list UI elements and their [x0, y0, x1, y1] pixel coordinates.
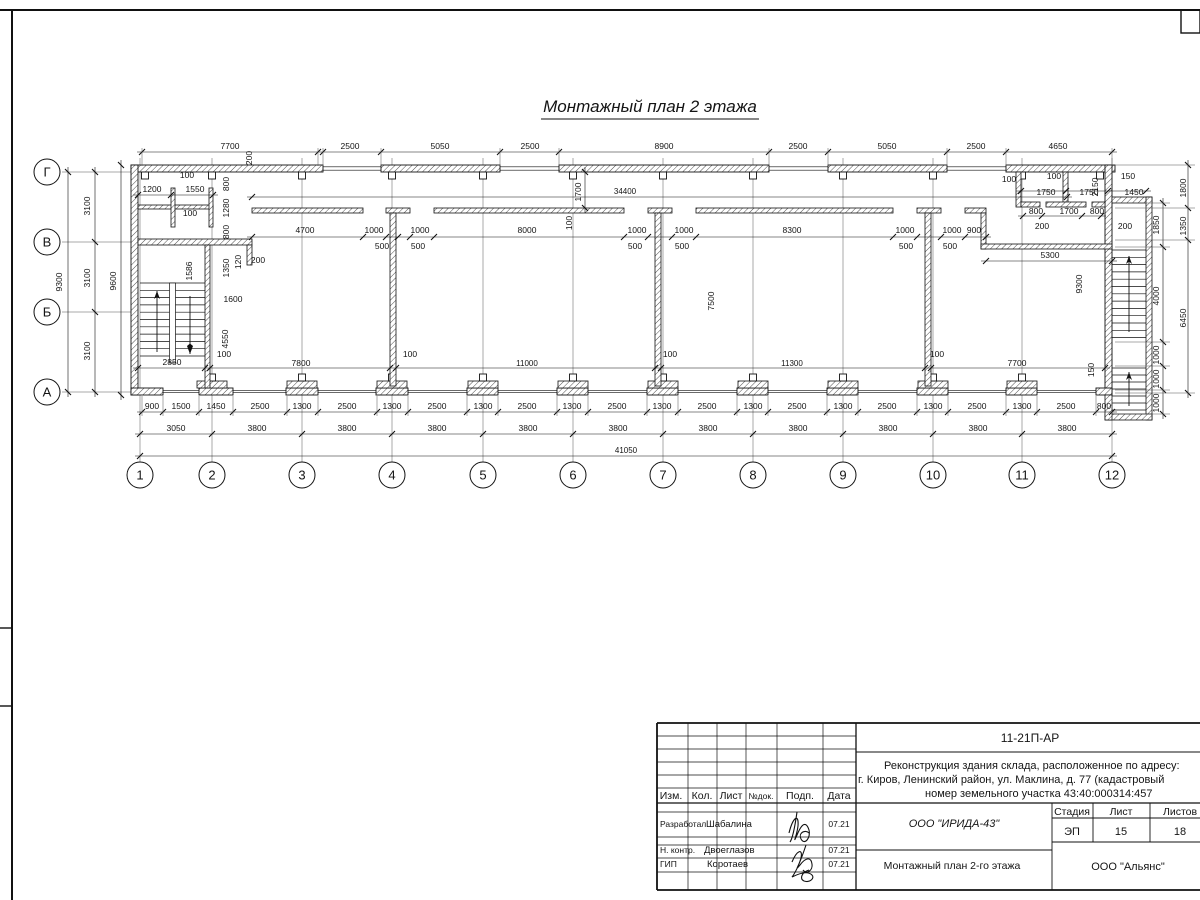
dimension-label: 1300 — [293, 401, 312, 411]
axis-label: 9 — [839, 468, 846, 483]
dimension-label: 2500 — [1057, 401, 1076, 411]
dimension-label: 500 — [943, 241, 957, 251]
floor-plan-drawing: Монтажный план 2 этажа — [0, 0, 1200, 900]
dimension-label: 1300 — [1013, 401, 1032, 411]
axis-label: Б — [43, 305, 52, 320]
list-col: Лист — [1110, 806, 1133, 818]
dimension-label: 2500 — [788, 401, 807, 411]
dimension-label: 1000 — [1151, 393, 1161, 412]
dimension-label: 3800 — [879, 423, 898, 433]
frame-corner-box — [1181, 10, 1200, 33]
project-line-1: Реконструкция здания склада, расположенн… — [884, 760, 1180, 772]
dimension-label: 3100 — [82, 196, 92, 215]
customer-org: ООО "Альянс" — [1091, 861, 1165, 873]
title-block: 11-21П-АР Реконструкция здания склада, р… — [657, 723, 1200, 890]
dimension-label: 100 — [403, 349, 417, 359]
dimension-label: 2500 — [518, 401, 537, 411]
dimension-label: 200 — [244, 151, 254, 165]
dimension-label: 8900 — [655, 141, 674, 151]
dimension-label: 1600 — [224, 294, 243, 304]
dimension-label: 8000 — [518, 225, 537, 235]
axis-label: 11 — [1015, 468, 1029, 483]
drawing-title-group: Монтажный план 2 этажа — [541, 97, 759, 119]
col-list: Лист — [720, 790, 743, 802]
dimension-label: 3800 — [699, 423, 718, 433]
exterior-wall — [131, 165, 1115, 395]
dimension-label: 150 — [1121, 171, 1135, 181]
axis-label: А — [43, 385, 52, 400]
dimension-label: 8300 — [783, 225, 802, 235]
dimension-label: 7800 — [292, 358, 311, 368]
dimension-label: 100 — [564, 216, 574, 230]
dimension-label: 200 — [1035, 221, 1049, 231]
dimension-label: 1800 — [1178, 178, 1188, 197]
dimension-label: 3800 — [1058, 423, 1077, 433]
dimension-label: 1300 — [924, 401, 943, 411]
dimension-label: 1300 — [653, 401, 672, 411]
axis-label: 7 — [659, 468, 666, 483]
axis-grid-lines — [62, 158, 1112, 462]
signer-role: Н. контр. — [660, 845, 695, 855]
stage-col: Стадия — [1054, 806, 1090, 818]
dimension-label: 1450 — [1125, 187, 1144, 197]
dimension-label: 2500 — [698, 401, 717, 411]
dimension-label: 1300 — [383, 401, 402, 411]
col-izm: Изм. — [660, 790, 683, 802]
signer-role: Разработал — [660, 819, 706, 829]
dimension-label: 2500 — [341, 141, 360, 151]
dimension-label: 2500 — [967, 141, 986, 151]
axis-label: 10 — [926, 468, 940, 483]
dimension-label: 200 — [1118, 221, 1132, 231]
dimension-label: 100 — [1002, 174, 1016, 184]
dimension-label: 500 — [628, 241, 642, 251]
dimension-label: 500 — [675, 241, 689, 251]
dimension-label: 1350 — [1178, 216, 1188, 235]
dimension-label: 1300 — [744, 401, 763, 411]
dimension-label: 34400 — [614, 187, 637, 196]
dimension-label: 3800 — [969, 423, 988, 433]
dimension-label: 1700 — [573, 182, 583, 201]
axis-label: 1 — [136, 468, 143, 483]
dimension-label: 100 — [1047, 171, 1061, 181]
dimension-label: 1700 — [1060, 206, 1079, 216]
dimension-label: 7500 — [706, 291, 716, 310]
drawing-sheet: Монтажный план 2 этажа — [0, 0, 1200, 900]
signer-date: 07.21 — [828, 859, 850, 869]
dimension-label: 800 — [221, 177, 231, 191]
dimension-label: 1000 — [365, 225, 384, 235]
col-ndok: №док. — [749, 791, 774, 801]
dimension-label: 1550 — [186, 184, 205, 194]
dimension-label: 9300 — [1074, 274, 1084, 293]
dimension-label: 1300 — [834, 401, 853, 411]
project-line-2: г. Киров, Ленинский район, ул. Маклина, … — [858, 774, 1164, 786]
dimension-label: 1300 — [474, 401, 493, 411]
dimension-label: 3800 — [609, 423, 628, 433]
signature — [789, 812, 813, 881]
dimension-label: 3800 — [338, 423, 357, 433]
dimension-label: 1500 — [172, 401, 191, 411]
dimension-label: 200 — [251, 255, 265, 265]
dimension-label: 800 — [221, 225, 231, 239]
dimension-label: 1000 — [1151, 345, 1161, 364]
dimension-label: 5300 — [1041, 250, 1060, 260]
project-line-3: номер земельного участка 43:40:000314:45… — [925, 788, 1153, 800]
dimension-label: 800 — [1090, 206, 1104, 216]
dimension-label: 100 — [663, 349, 677, 359]
dimension-label: 2500 — [251, 401, 270, 411]
listov-col: Листов — [1163, 806, 1198, 818]
dimension-label: 900 — [145, 401, 159, 411]
dimension-label: 1000 — [1151, 369, 1161, 388]
design-org: ООО "ИРИДА-43" — [909, 818, 1001, 830]
dimension-label: 900 — [967, 225, 981, 235]
dimension-label: 1280 — [221, 198, 231, 217]
dimension-label: 2500 — [428, 401, 447, 411]
dimension-label: 100 — [217, 349, 231, 359]
sheets-total: 18 — [1174, 826, 1186, 838]
signer-date: 07.21 — [828, 845, 850, 855]
dimension-label: 3100 — [82, 341, 92, 360]
axis-label: 3 — [298, 468, 305, 483]
col-kol: Кол. — [692, 790, 713, 802]
dimension-label: 2150 — [1090, 177, 1100, 196]
dimension-label: 1300 — [563, 401, 582, 411]
signer-name: Коротаев — [707, 859, 748, 870]
dimension-label: 800 — [1097, 401, 1111, 411]
dimension-label: 1200 — [143, 184, 162, 194]
axis-label: 8 — [749, 468, 756, 483]
dimension-label: 11300 — [781, 359, 803, 368]
dimension-label: 2500 — [878, 401, 897, 411]
page-title: Монтажный план 2 этажа — [543, 97, 757, 116]
axis-label: В — [43, 235, 52, 250]
doc-number: 11-21П-АР — [1001, 731, 1059, 745]
dimension-label: 3800 — [428, 423, 447, 433]
axis-label: 4 — [388, 468, 395, 483]
axis-label: 5 — [479, 468, 486, 483]
dimension-label: 100 — [180, 170, 194, 180]
dimension-label: 4700 — [296, 225, 315, 235]
axis-label: Г — [43, 165, 50, 180]
dimension-label: 1000 — [943, 225, 962, 235]
dimension-label: 1000 — [411, 225, 430, 235]
col-podp: Подп. — [786, 790, 814, 802]
signer-date: 07.21 — [828, 819, 850, 829]
dimension-label: 2500 — [789, 141, 808, 151]
dimension-label: 3800 — [519, 423, 538, 433]
dimension-label: 3100 — [82, 268, 92, 287]
dimension-label: 11000 — [516, 359, 538, 368]
dimension-label: 1450 — [207, 401, 226, 411]
dimension-label: 800 — [1029, 206, 1043, 216]
dimension-label: 100 — [183, 208, 197, 218]
dimension-label: 1750 — [1037, 187, 1056, 197]
dimension-label: 41050 — [615, 446, 638, 455]
dimension-label: 2500 — [608, 401, 627, 411]
walls — [131, 165, 1152, 420]
col-data: Дата — [827, 790, 850, 802]
dimension-label: 1000 — [675, 225, 694, 235]
stage-value: ЭП — [1064, 826, 1080, 838]
sheet-title: Монтажный план 2-го этажа — [884, 860, 1021, 872]
sheet-number: 15 — [1115, 826, 1127, 838]
dimension-label: 500 — [899, 241, 913, 251]
dimension-label: 5050 — [878, 141, 897, 151]
dimension-label: 4650 — [1049, 141, 1068, 151]
dimension-label: 9600 — [108, 271, 118, 290]
axis-label: 2 — [208, 468, 215, 483]
signer-name: Двоеглазов — [704, 845, 755, 856]
axis-label: 6 — [569, 468, 576, 483]
dimension-label: 3800 — [789, 423, 808, 433]
dimension-label: 1850 — [1151, 215, 1161, 234]
dimension-label: 4000 — [1151, 286, 1161, 305]
dimension-label: 3050 — [167, 423, 186, 433]
dimension-label: 100 — [930, 349, 944, 359]
dimension-label: 5050 — [431, 141, 450, 151]
dimension-label: 1000 — [628, 225, 647, 235]
column-pads — [142, 172, 1104, 388]
dimension-label: 1350 — [221, 258, 231, 277]
dimension-label: 3800 — [248, 423, 267, 433]
dimension-label: 7700 — [221, 141, 240, 151]
dimension-label: 2850 — [163, 357, 182, 367]
dimension-label: 1586 — [184, 261, 194, 280]
dimension-label: 1000 — [896, 225, 915, 235]
dimension-label: 500 — [375, 241, 389, 251]
dimension-label: 2500 — [521, 141, 540, 151]
axis-label: 12 — [1105, 468, 1119, 483]
signer-name: Шабалина — [706, 819, 753, 830]
dimension-label: 7700 — [1008, 358, 1027, 368]
dimension-label: 120 — [233, 255, 243, 269]
dimension-label: 150 — [1086, 363, 1096, 377]
dimension-label: 2500 — [968, 401, 987, 411]
dimension-label: 6450 — [1178, 308, 1188, 327]
signer-role: ГИП — [660, 859, 677, 869]
dimension-label: 500 — [411, 241, 425, 251]
dimension-label: 9300 — [54, 272, 64, 291]
dimension-label: 4550 — [220, 329, 230, 348]
dimension-label: 2500 — [338, 401, 357, 411]
